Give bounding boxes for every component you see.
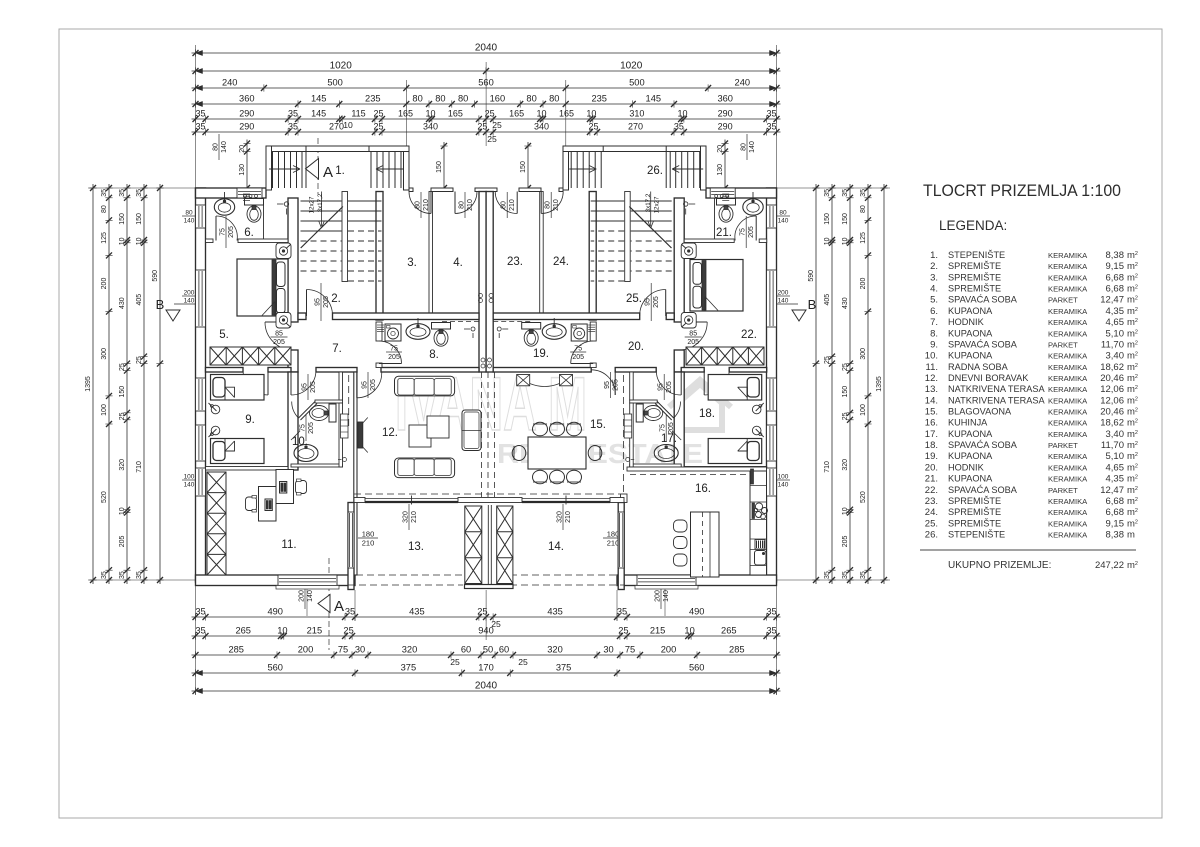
svg-text:10: 10 (842, 237, 849, 245)
svg-text:285: 285 (729, 645, 745, 655)
svg-text:B: B (808, 297, 817, 312)
svg-text:80: 80 (860, 205, 867, 213)
svg-text:KUPAONA: KUPAONA (948, 328, 993, 338)
svg-text:KUPAONA: KUPAONA (948, 351, 993, 361)
svg-text:4,35: 4,35 (1106, 306, 1125, 317)
svg-text:100: 100 (101, 404, 108, 416)
svg-text:10: 10 (277, 626, 287, 636)
svg-text:12x27: 12x27 (654, 196, 661, 213)
svg-text:710: 710 (136, 461, 143, 473)
svg-text:12,47: 12,47 (1100, 485, 1124, 496)
svg-text:10: 10 (343, 120, 353, 130)
svg-text:KERAMIKA: KERAMIKA (1048, 396, 1088, 405)
svg-text:1020: 1020 (620, 61, 643, 72)
svg-text:18.: 18. (925, 440, 938, 451)
svg-text:430: 430 (842, 297, 849, 309)
svg-text:300: 300 (101, 348, 108, 360)
svg-text:100: 100 (184, 474, 195, 481)
svg-text:560: 560 (689, 663, 705, 673)
svg-text:35: 35 (766, 122, 776, 132)
svg-text:2.: 2. (331, 293, 341, 305)
svg-text:26.: 26. (925, 530, 938, 541)
svg-text:1.: 1. (930, 250, 938, 261)
svg-text:100: 100 (860, 404, 867, 416)
svg-text:80: 80 (459, 201, 466, 209)
svg-text:STEPENIŠTE: STEPENIŠTE (948, 530, 1005, 540)
svg-text:8.: 8. (429, 349, 439, 361)
svg-text:16.: 16. (695, 483, 711, 495)
svg-text:5,10: 5,10 (1106, 328, 1125, 339)
svg-text:165: 165 (398, 109, 413, 119)
svg-text:6,68: 6,68 (1106, 496, 1125, 507)
svg-text:22.: 22. (741, 329, 757, 341)
svg-text:320: 320 (403, 511, 410, 523)
svg-text:35: 35 (195, 626, 205, 636)
svg-text:150: 150 (436, 161, 443, 173)
svg-text:210: 210 (553, 199, 560, 211)
svg-text:KERAMIKA: KERAMIKA (1048, 262, 1088, 271)
svg-text:215: 215 (650, 626, 666, 636)
svg-text:35: 35 (288, 109, 298, 119)
svg-text:KERAMIKA: KERAMIKA (1048, 508, 1088, 517)
svg-text:35: 35 (288, 122, 298, 132)
svg-text:520: 520 (860, 491, 867, 503)
svg-text:A: A (334, 598, 344, 615)
svg-text:24.: 24. (925, 507, 938, 518)
svg-text:85: 85 (275, 331, 283, 338)
svg-text:10: 10 (119, 507, 126, 515)
svg-text:80: 80 (779, 210, 787, 217)
svg-text:STEPENIŠTE: STEPENIŠTE (948, 250, 1005, 260)
svg-text:20,46: 20,46 (1100, 407, 1124, 418)
svg-text:PARKET: PARKET (1048, 340, 1078, 349)
svg-text:310: 310 (629, 109, 644, 119)
svg-text:205: 205 (119, 535, 126, 547)
svg-text:140: 140 (663, 590, 670, 602)
svg-text:375: 375 (401, 663, 417, 673)
svg-text:10: 10 (425, 109, 435, 119)
svg-text:205: 205 (653, 296, 660, 308)
svg-text:6.: 6. (244, 227, 254, 239)
svg-text:SPAVAĆA SOBA: SPAVAĆA SOBA (948, 295, 1018, 305)
svg-text:KERAMIKA: KERAMIKA (1048, 352, 1088, 361)
svg-text:25: 25 (487, 134, 497, 144)
svg-text:16.: 16. (925, 418, 938, 429)
svg-text:10: 10 (677, 109, 687, 119)
svg-text:75: 75 (574, 346, 582, 353)
svg-text:95: 95 (604, 381, 611, 389)
svg-text:SPREMIŠTE: SPREMIŠTE (948, 272, 1001, 282)
svg-text:75: 75 (740, 228, 747, 236)
svg-text:95: 95 (645, 298, 652, 306)
svg-text:205: 205 (310, 381, 317, 393)
svg-text:KUHINJA: KUHINJA (948, 418, 988, 428)
svg-text:4,65: 4,65 (1106, 317, 1125, 328)
svg-text:270: 270 (628, 122, 643, 132)
svg-text:405: 405 (136, 294, 143, 306)
svg-text:140: 140 (184, 298, 195, 305)
svg-text:200: 200 (101, 278, 108, 290)
svg-text:210: 210 (423, 199, 430, 211)
svg-text:95: 95 (658, 383, 665, 391)
svg-text:10: 10 (586, 109, 596, 119)
svg-text:3x17,2: 3x17,2 (317, 193, 324, 212)
svg-text:11.: 11. (281, 539, 296, 551)
svg-text:14.: 14. (548, 541, 564, 553)
svg-text:8.: 8. (930, 328, 938, 339)
svg-text:435: 435 (409, 607, 425, 617)
svg-text:13.: 13. (925, 384, 938, 395)
svg-text:4,35: 4,35 (1106, 474, 1125, 485)
svg-text:KERAMIKA: KERAMIKA (1048, 408, 1088, 417)
svg-text:SPREMIŠTE: SPREMIŠTE (948, 507, 1001, 517)
svg-text:80: 80 (501, 201, 508, 209)
svg-text:80: 80 (741, 143, 748, 151)
svg-text:25: 25 (343, 626, 353, 636)
svg-text:75: 75 (660, 424, 667, 432)
svg-text:35: 35 (345, 607, 355, 617)
svg-text:205: 205 (613, 379, 620, 391)
svg-text:3x17,2: 3x17,2 (645, 193, 652, 212)
svg-text:320: 320 (547, 645, 563, 655)
svg-text:25: 25 (842, 363, 849, 371)
svg-text:100: 100 (778, 474, 789, 481)
svg-text:KERAMIKA: KERAMIKA (1048, 419, 1088, 428)
svg-text:KERAMIKA: KERAMIKA (1048, 285, 1088, 294)
svg-text:35: 35 (119, 189, 126, 197)
svg-text:265: 265 (721, 626, 737, 636)
svg-text:200: 200 (655, 590, 662, 602)
svg-text:320: 320 (842, 459, 849, 471)
svg-text:25: 25 (518, 657, 528, 667)
svg-text:17.: 17. (925, 429, 938, 440)
svg-text:4.: 4. (453, 257, 463, 269)
svg-text:270: 270 (329, 122, 344, 132)
svg-text:12.: 12. (925, 373, 938, 384)
svg-text:4.: 4. (930, 284, 938, 295)
svg-text:24.: 24. (553, 256, 569, 268)
svg-text:205: 205 (323, 296, 330, 308)
svg-text:KERAMIKA: KERAMIKA (1048, 497, 1088, 506)
svg-text:35: 35 (101, 571, 108, 579)
svg-text:235: 235 (591, 94, 607, 104)
svg-text:235: 235 (365, 94, 381, 104)
svg-text:285: 285 (228, 645, 244, 655)
svg-text:265: 265 (235, 626, 251, 636)
svg-text:B: B (156, 297, 165, 312)
svg-text:145: 145 (311, 94, 327, 104)
svg-text:3.: 3. (930, 272, 938, 283)
svg-text:12,06: 12,06 (1100, 384, 1124, 395)
svg-text:130: 130 (717, 164, 724, 176)
svg-text:35: 35 (766, 626, 776, 636)
svg-text:35: 35 (195, 607, 205, 617)
svg-text:SPAVAĆA SOBA: SPAVAĆA SOBA (948, 440, 1018, 450)
svg-text:165: 165 (509, 109, 524, 119)
svg-text:75: 75 (220, 228, 227, 236)
svg-text:320: 320 (119, 459, 126, 471)
svg-text:290: 290 (239, 122, 254, 132)
svg-text:KERAMIKA: KERAMIKA (1048, 385, 1088, 394)
svg-text:140: 140 (778, 482, 789, 489)
svg-text:165: 165 (559, 109, 574, 119)
svg-text:50: 50 (483, 645, 493, 655)
svg-text:145: 145 (311, 109, 326, 119)
svg-text:SPAVAĆA SOBA: SPAVAĆA SOBA (948, 339, 1018, 349)
svg-text:SPREMIŠTE: SPREMIŠTE (948, 518, 1001, 528)
svg-text:205: 205 (273, 339, 285, 346)
svg-text:35: 35 (195, 122, 205, 132)
svg-text:205: 205 (572, 354, 584, 361)
svg-text:205: 205 (842, 535, 849, 547)
svg-text:2040: 2040 (475, 681, 498, 692)
svg-text:10: 10 (684, 626, 694, 636)
svg-text:PARKET: PARKET (1048, 486, 1078, 495)
svg-text:430: 430 (119, 297, 126, 309)
svg-text:35: 35 (136, 571, 143, 579)
svg-text:25: 25 (618, 626, 628, 636)
svg-text:13.: 13. (408, 541, 424, 553)
svg-text:23.: 23. (925, 496, 938, 507)
svg-text:35: 35 (674, 122, 684, 132)
svg-text:10: 10 (536, 109, 546, 119)
svg-text:20: 20 (239, 145, 246, 153)
svg-text:KERAMIKA: KERAMIKA (1048, 363, 1088, 372)
svg-text:140: 140 (778, 218, 789, 225)
svg-text:6,68: 6,68 (1106, 284, 1125, 295)
svg-text:140: 140 (749, 141, 756, 153)
svg-text:25.: 25. (925, 518, 938, 529)
svg-text:26.: 26. (647, 165, 663, 177)
svg-text:5,10: 5,10 (1106, 451, 1125, 462)
svg-text:205: 205 (687, 339, 699, 346)
svg-text:210: 210 (607, 539, 620, 548)
svg-text:DNEVNI BORAVAK: DNEVNI BORAVAK (948, 373, 1029, 383)
svg-text:35: 35 (766, 607, 776, 617)
svg-text:290: 290 (239, 109, 254, 119)
svg-text:25: 25 (136, 356, 143, 364)
svg-text:80: 80 (213, 143, 220, 151)
svg-text:210: 210 (565, 511, 572, 523)
svg-text:150: 150 (842, 386, 849, 398)
svg-text:490: 490 (267, 607, 283, 617)
svg-text:25: 25 (842, 412, 849, 420)
svg-text:150: 150 (119, 213, 126, 225)
svg-text:12x27: 12x27 (309, 196, 316, 213)
svg-text:200: 200 (778, 290, 789, 297)
svg-text:1395: 1395 (876, 376, 883, 392)
svg-text:1395: 1395 (85, 376, 92, 392)
svg-text:3.: 3. (407, 257, 417, 269)
svg-text:2040: 2040 (475, 43, 498, 54)
svg-text:3,40: 3,40 (1106, 351, 1125, 362)
svg-text:35: 35 (766, 109, 776, 119)
svg-text:80: 80 (526, 94, 536, 104)
svg-text:10.: 10. (925, 351, 938, 362)
svg-text:125: 125 (860, 232, 867, 244)
svg-text:140: 140 (221, 141, 228, 153)
svg-text:KERAMIKA: KERAMIKA (1048, 273, 1088, 282)
svg-text:170: 170 (478, 663, 494, 673)
svg-text:95: 95 (302, 383, 309, 391)
svg-text:25: 25 (373, 109, 383, 119)
svg-text:1.: 1. (335, 165, 345, 177)
svg-text:35: 35 (860, 571, 867, 579)
svg-text:200: 200 (661, 645, 677, 655)
svg-text:590: 590 (152, 270, 159, 282)
svg-text:25: 25 (119, 412, 126, 420)
svg-text:75: 75 (338, 645, 348, 655)
svg-text:80: 80 (549, 94, 559, 104)
svg-text:1020: 1020 (330, 61, 353, 72)
svg-text:85: 85 (689, 331, 697, 338)
svg-text:10.: 10. (292, 436, 308, 448)
svg-text:180: 180 (607, 530, 620, 539)
svg-text:340: 340 (423, 122, 438, 132)
svg-text:360: 360 (239, 94, 255, 104)
svg-text:60: 60 (499, 645, 509, 655)
svg-text:4,65: 4,65 (1106, 462, 1125, 473)
svg-text:130: 130 (239, 164, 246, 176)
svg-text:150: 150 (119, 386, 126, 398)
svg-text:12,47: 12,47 (1100, 295, 1124, 306)
svg-text:KUPAONA: KUPAONA (948, 429, 993, 439)
svg-text:80: 80 (545, 201, 552, 209)
svg-text:KERAMIKA: KERAMIKA (1048, 329, 1088, 338)
svg-text:215: 215 (307, 626, 323, 636)
svg-text:17.: 17. (661, 433, 677, 445)
svg-text:NATKRIVENA TERASA: NATKRIVENA TERASA (948, 384, 1046, 394)
svg-text:18.: 18. (699, 408, 715, 420)
svg-text:21.: 21. (716, 227, 732, 239)
svg-text:200: 200 (298, 645, 314, 655)
svg-text:435: 435 (547, 607, 563, 617)
svg-text:210: 210 (509, 199, 516, 211)
svg-text:160: 160 (490, 94, 506, 104)
svg-text:6.: 6. (930, 306, 938, 317)
svg-text:10: 10 (824, 237, 831, 245)
svg-text:35: 35 (119, 571, 126, 579)
svg-text:18,62: 18,62 (1100, 362, 1124, 373)
svg-text:80: 80 (435, 94, 445, 104)
svg-text:290: 290 (718, 122, 733, 132)
svg-text:SPREMIŠTE: SPREMIŠTE (948, 261, 1001, 271)
svg-text:25: 25 (588, 122, 598, 132)
svg-text:80: 80 (101, 205, 108, 213)
svg-text:21.: 21. (925, 474, 938, 485)
svg-text:75: 75 (625, 645, 635, 655)
svg-text:560: 560 (267, 663, 283, 673)
svg-text:PARKET: PARKET (1048, 441, 1078, 450)
svg-text:210: 210 (362, 539, 375, 548)
svg-text:590: 590 (808, 270, 815, 282)
svg-text:500: 500 (629, 78, 645, 88)
svg-text:240: 240 (222, 78, 238, 88)
svg-text:SPREMIŠTE: SPREMIŠTE (948, 496, 1001, 506)
svg-text:205: 205 (388, 354, 400, 361)
svg-text:140: 140 (184, 482, 195, 489)
svg-text:25.: 25. (626, 293, 642, 305)
svg-text:KUPAONA: KUPAONA (948, 451, 993, 461)
svg-text:165: 165 (448, 109, 463, 119)
svg-text:A: A (323, 164, 333, 181)
svg-text:10: 10 (842, 507, 849, 515)
svg-text:9,15: 9,15 (1106, 518, 1125, 529)
svg-text:35: 35 (195, 109, 205, 119)
svg-text:25: 25 (119, 363, 126, 371)
svg-text:205: 205 (666, 381, 673, 393)
svg-text:25: 25 (450, 657, 460, 667)
svg-text:KERAMIKA: KERAMIKA (1048, 452, 1088, 461)
svg-text:KERAMIKA: KERAMIKA (1048, 430, 1088, 439)
svg-text:210: 210 (411, 511, 418, 523)
svg-text:30: 30 (603, 645, 613, 655)
svg-text:KERAMIKA: KERAMIKA (1048, 475, 1088, 484)
svg-text:35: 35 (101, 189, 108, 197)
svg-text:60: 60 (461, 645, 471, 655)
svg-text:240: 240 (735, 78, 751, 88)
svg-text:KERAMIKA: KERAMIKA (1048, 519, 1088, 528)
svg-text:75: 75 (390, 346, 398, 353)
svg-text:11.: 11. (925, 362, 938, 373)
svg-text:80: 80 (458, 94, 468, 104)
svg-text:75: 75 (300, 424, 307, 432)
svg-text:NATKRIVENA TERASA: NATKRIVENA TERASA (948, 395, 1046, 405)
svg-text:7.: 7. (332, 343, 342, 355)
svg-text:BLAGOVAONA: BLAGOVAONA (948, 407, 1012, 417)
svg-text:205: 205 (228, 226, 235, 238)
svg-text:10: 10 (136, 237, 143, 245)
svg-text:150: 150 (824, 213, 831, 225)
svg-text:10: 10 (119, 237, 126, 245)
svg-text:205: 205 (370, 379, 377, 391)
svg-text:11,70: 11,70 (1101, 440, 1124, 451)
svg-text:8,38: 8,38 (1106, 530, 1125, 541)
svg-text:35: 35 (617, 607, 627, 617)
svg-text:20.: 20. (925, 462, 938, 473)
svg-text:5.: 5. (930, 295, 938, 306)
svg-text:20: 20 (717, 145, 724, 153)
svg-text:340: 340 (534, 122, 549, 132)
svg-text:18,62: 18,62 (1100, 418, 1124, 429)
svg-text:247,22: 247,22 (1095, 560, 1124, 571)
svg-text:205: 205 (308, 422, 315, 434)
svg-text:35: 35 (824, 189, 831, 197)
svg-text:710: 710 (824, 461, 831, 473)
svg-text:TLOCRT PRIZEMLJA 1:100: TLOCRT PRIZEMLJA 1:100 (923, 181, 1121, 200)
svg-text:KUPAONA: KUPAONA (948, 306, 993, 316)
svg-text:9.: 9. (245, 414, 255, 426)
svg-text:320: 320 (557, 511, 564, 523)
svg-text:2.: 2. (930, 261, 938, 272)
svg-text:19.: 19. (925, 451, 938, 462)
svg-text:SPAVAĆA SOBA: SPAVAĆA SOBA (948, 485, 1018, 495)
svg-text:200: 200 (299, 590, 306, 602)
svg-text:125: 125 (101, 232, 108, 244)
svg-text:150: 150 (842, 213, 849, 225)
svg-text:12.: 12. (382, 427, 398, 439)
svg-text:11,70: 11,70 (1101, 339, 1124, 350)
svg-text:KERAMIKA: KERAMIKA (1048, 307, 1088, 316)
svg-text:95: 95 (362, 381, 369, 389)
svg-text:9,15: 9,15 (1106, 261, 1125, 272)
svg-text:LEGENDA:: LEGENDA: (939, 218, 1007, 233)
svg-text:150: 150 (520, 161, 527, 173)
svg-text:6,68: 6,68 (1106, 507, 1125, 518)
svg-text:405: 405 (824, 294, 831, 306)
svg-text:490: 490 (689, 607, 705, 617)
svg-text:12,06: 12,06 (1100, 395, 1124, 406)
